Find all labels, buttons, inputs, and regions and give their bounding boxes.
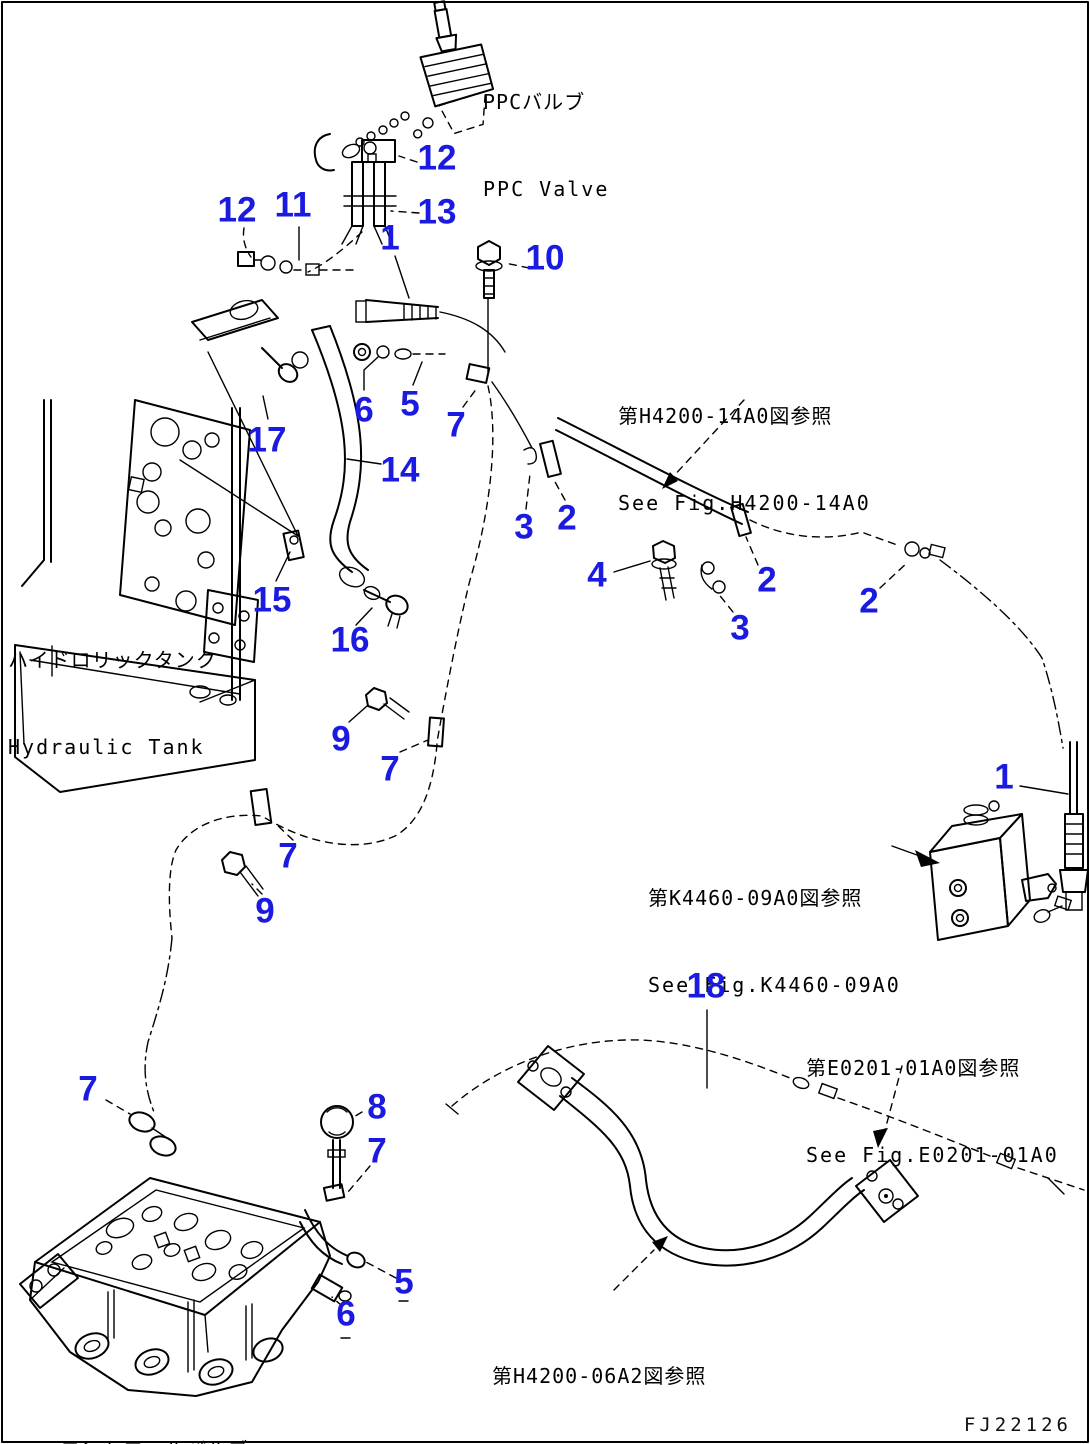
left-fitting-chain — [238, 252, 354, 275]
callout-6: 6 — [354, 393, 373, 428]
hydraulic-tank-label: ハイドロリックタンク Hydraulic Tank — [8, 588, 217, 820]
hydraulic-tank-label-en: Hydraulic Tank — [8, 733, 217, 762]
ref-e0201-01a0-en: See Fig.E0201-01A0 — [806, 1141, 1059, 1170]
callout-11: 11 — [275, 188, 312, 223]
ppc-valve-label: PPCバルブ PPC Valve — [483, 30, 609, 262]
callout-3: 3 — [730, 611, 749, 646]
callout-13: 13 — [418, 195, 457, 230]
callout-2: 2 — [757, 563, 776, 598]
ppc-valve-label-en: PPC Valve — [483, 175, 609, 204]
callout-5: 5 — [400, 387, 419, 422]
callout-1: 1 — [380, 221, 399, 256]
callout-8: 8 — [367, 1090, 386, 1125]
callout-12: 12 — [218, 193, 257, 228]
callout-3: 3 — [514, 510, 533, 545]
callout-14: 14 — [381, 453, 420, 488]
callout-15: 15 — [253, 583, 292, 618]
ref-e0201-01a0: 第E0201-01A0図参照 See Fig.E0201-01A0 — [806, 996, 1059, 1228]
ref-h4200-14a0-en: See Fig.H4200-14A0 — [618, 489, 871, 518]
control-valve-label-jp: コントロールバルブ — [60, 1436, 249, 1444]
ppc-valve-label-jp: PPCバルブ — [483, 88, 609, 117]
k4460-valve-block — [892, 801, 1071, 940]
callout-7: 7 — [367, 1134, 386, 1169]
callout-9: 9 — [331, 722, 350, 757]
drawing-number: FJ22126 — [964, 1414, 1072, 1436]
ref-h4200-14a0-jp: 第H4200-14A0図参照 — [618, 402, 871, 431]
ref-h4200-14a0: 第H4200-14A0図参照 See Fig.H4200-14A0 — [618, 344, 871, 576]
callout-18: 18 — [687, 969, 726, 1004]
ref-h4200-06a2: 第H4200-06A2図参照 See Fig.H4200-06A2 — [492, 1304, 745, 1444]
callout-17: 17 — [248, 423, 287, 458]
callout-4: 4 — [587, 558, 606, 593]
control-valve-drawing — [20, 1178, 330, 1396]
callout-6: 6 — [336, 1297, 355, 1332]
callout-2: 2 — [557, 501, 576, 536]
hydraulic-tank-label-jp: ハイドロリックタンク — [8, 646, 217, 675]
callout-7: 7 — [278, 839, 297, 874]
callout-7: 7 — [446, 408, 465, 443]
callout-16: 16 — [331, 623, 370, 658]
callout-7: 7 — [380, 752, 399, 787]
ref-h4200-06a2-jp: 第H4200-06A2図参照 — [492, 1362, 745, 1391]
ref-k4460-09a0-jp: 第K4460-09A0図参照 — [648, 884, 901, 913]
parts-diagram-page: PPCバルブ PPC Valve ハイドロリックタンク Hydraulic Ta… — [0, 0, 1090, 1444]
ref-e0201-01a0-jp: 第E0201-01A0図参照 — [806, 1054, 1059, 1083]
callout-5: 5 — [394, 1265, 413, 1300]
callout-2: 2 — [859, 584, 878, 619]
callout-9: 9 — [255, 894, 274, 929]
bracket-assembly-17 — [192, 298, 308, 536]
callout-12: 12 — [418, 141, 457, 176]
control-valve-label: コントロールバルブ Control Valve — [60, 1378, 249, 1444]
callout-7: 7 — [78, 1072, 97, 1107]
callout-10: 10 — [526, 241, 565, 276]
callout-1: 1 — [994, 760, 1013, 795]
